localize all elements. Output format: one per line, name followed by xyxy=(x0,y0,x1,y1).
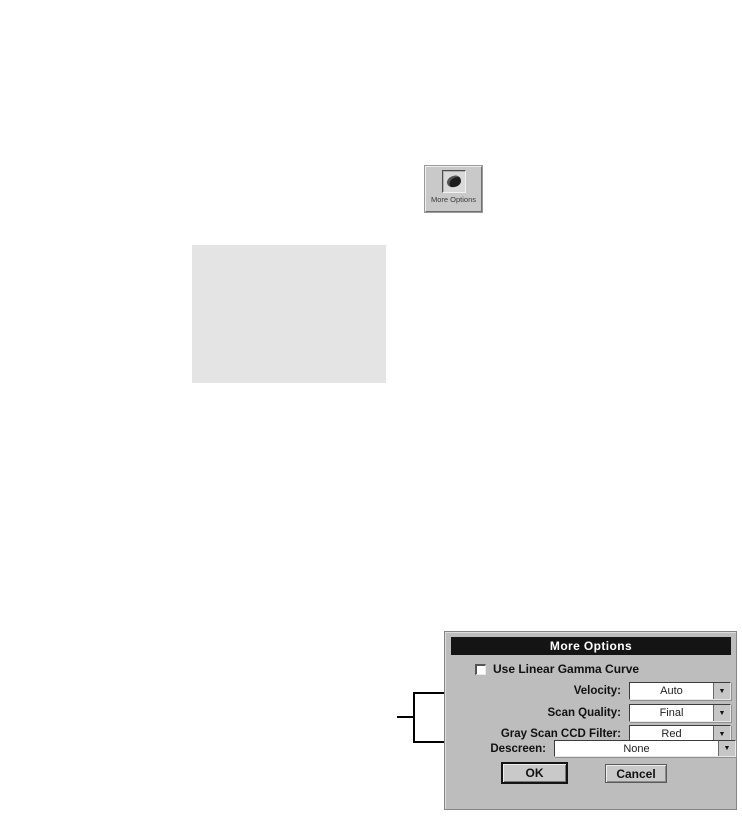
more-options-stamp-icon xyxy=(442,170,466,193)
descreen-dropdown[interactable]: None ▼ xyxy=(554,740,736,757)
bracket-vertical-line xyxy=(413,692,415,743)
velocity-label: Velocity: xyxy=(574,682,621,700)
manual-page: More Options More Options Use Linear Gam… xyxy=(0,0,742,817)
descreen-label: Descreen: xyxy=(490,740,546,758)
ok-button[interactable]: OK xyxy=(501,762,568,784)
ccd-filter-value: Red xyxy=(630,728,713,740)
dialog-titlebar[interactable]: More Options xyxy=(451,637,731,655)
dialog-title: More Options xyxy=(550,639,632,653)
descreen-value: None xyxy=(555,743,718,755)
gamma-curve-checkbox[interactable] xyxy=(475,664,486,675)
toolbar-button-label: More Options xyxy=(431,195,476,204)
scan-quality-dropdown[interactable]: Final ▼ xyxy=(629,704,731,722)
ok-button-label: OK xyxy=(526,766,544,780)
cancel-button[interactable]: Cancel xyxy=(605,764,667,783)
image-placeholder xyxy=(192,245,386,383)
velocity-dropdown[interactable]: Auto ▼ xyxy=(629,682,731,700)
scan-quality-label: Scan Quality: xyxy=(548,704,622,722)
more-options-toolbar-button[interactable]: More Options xyxy=(425,166,482,212)
velocity-value: Auto xyxy=(630,685,713,697)
gamma-curve-checkbox-label: Use Linear Gamma Curve xyxy=(493,662,639,676)
chevron-down-icon[interactable]: ▼ xyxy=(713,683,730,699)
bracket-stub-line xyxy=(397,716,414,718)
chevron-down-icon[interactable]: ▼ xyxy=(713,705,730,721)
chevron-down-icon[interactable]: ▼ xyxy=(718,741,735,756)
scan-quality-value: Final xyxy=(630,707,713,719)
more-options-dialog: More Options Use Linear Gamma Curve Velo… xyxy=(444,631,737,810)
cancel-button-label: Cancel xyxy=(616,767,655,781)
gamma-curve-checkbox-row[interactable]: Use Linear Gamma Curve xyxy=(475,662,639,676)
